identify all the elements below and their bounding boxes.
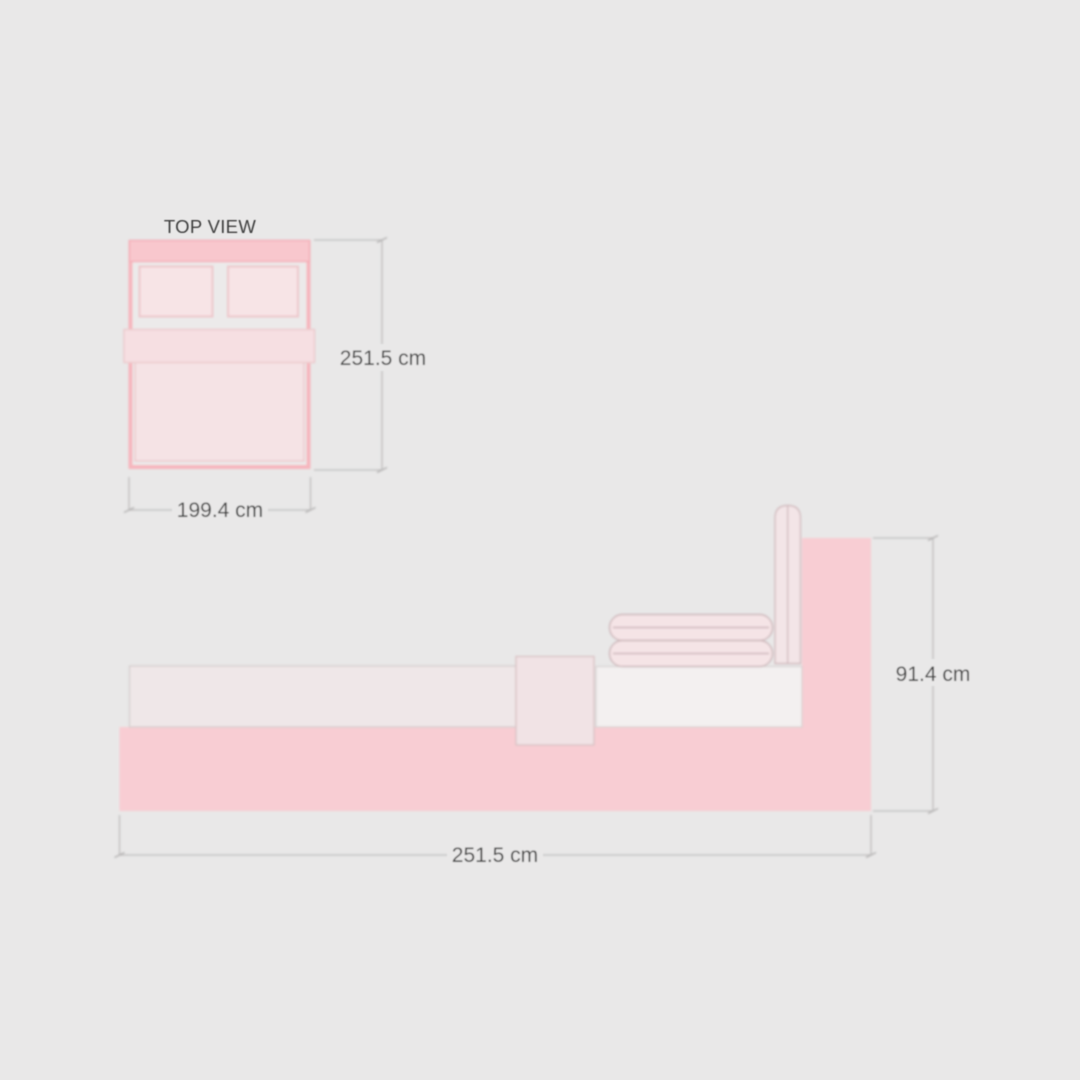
svg-text:199.4 cm: 199.4 cm <box>177 499 263 522</box>
svg-text:251.5 cm: 251.5 cm <box>452 844 538 867</box>
svg-text:251.5 cm: 251.5 cm <box>340 347 426 370</box>
svg-text:TOP VIEW: TOP VIEW <box>164 216 256 237</box>
svg-text:91.4 cm: 91.4 cm <box>896 663 971 686</box>
